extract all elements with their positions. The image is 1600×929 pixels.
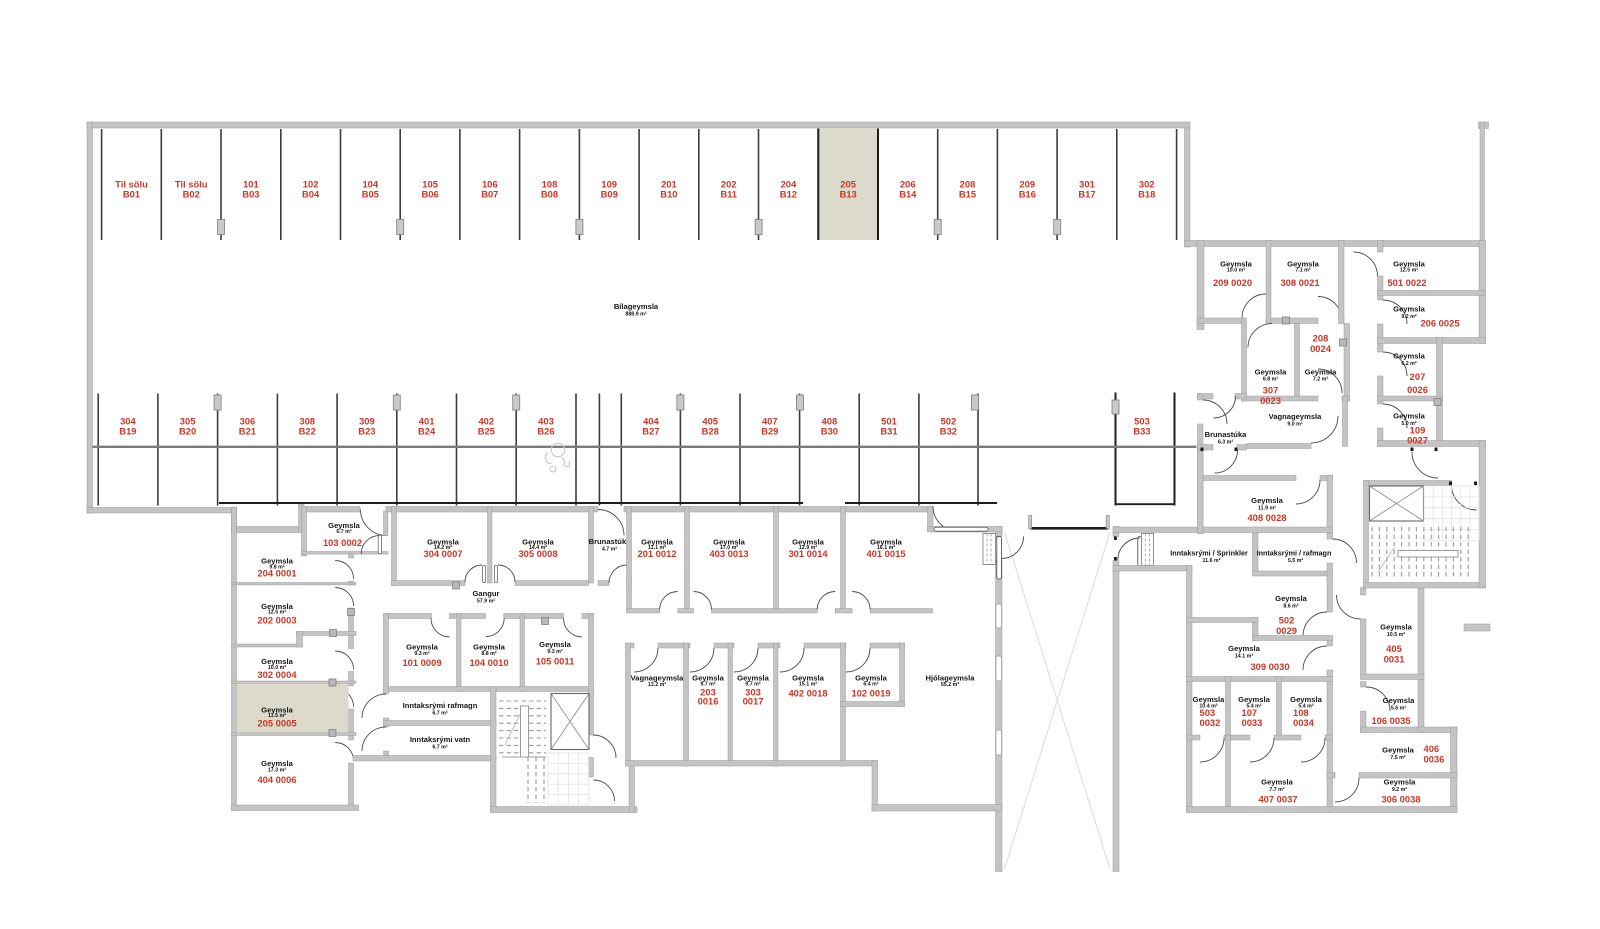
svg-text:8.6 m²: 8.6 m² xyxy=(1283,604,1299,610)
svg-text:Geymsla: Geymsla xyxy=(1251,496,1283,505)
svg-text:55.2 m²: 55.2 m² xyxy=(941,682,959,688)
svg-text:B20: B20 xyxy=(179,426,196,437)
svg-text:Vagnageymsla: Vagnageymsla xyxy=(1269,412,1323,421)
svg-text:0024: 0024 xyxy=(1310,343,1332,354)
svg-text:B17: B17 xyxy=(1078,189,1095,200)
svg-text:Brunastúka: Brunastúka xyxy=(589,537,632,546)
svg-text:204 0001: 204 0001 xyxy=(257,568,296,579)
svg-text:103 0002: 103 0002 xyxy=(323,537,362,548)
svg-text:0023: 0023 xyxy=(1260,395,1281,406)
svg-text:101 0009: 101 0009 xyxy=(402,657,441,668)
svg-text:B12: B12 xyxy=(780,189,797,200)
svg-text:7.1 m²: 7.1 m² xyxy=(1295,268,1311,274)
svg-text:7.7 m²: 7.7 m² xyxy=(1269,787,1285,793)
svg-text:0033: 0033 xyxy=(1242,717,1263,728)
svg-text:11.6 m²: 11.6 m² xyxy=(1203,558,1221,564)
svg-text:B18: B18 xyxy=(1138,189,1155,200)
svg-text:11.9 m²: 11.9 m² xyxy=(1258,506,1276,512)
svg-text:B27: B27 xyxy=(642,426,659,437)
svg-text:B16: B16 xyxy=(1019,189,1036,200)
svg-text:0027: 0027 xyxy=(1407,435,1428,446)
svg-text:Geymsla: Geymsla xyxy=(1380,623,1412,632)
svg-text:B01: B01 xyxy=(123,189,140,200)
svg-text:6.7 m²: 6.7 m² xyxy=(432,745,448,751)
svg-text:B22: B22 xyxy=(299,426,316,437)
svg-text:9.2 m²: 9.2 m² xyxy=(1401,314,1417,320)
svg-text:401 0015: 401 0015 xyxy=(866,548,905,559)
svg-text:B23: B23 xyxy=(358,426,375,437)
svg-text:106 0035: 106 0035 xyxy=(1371,715,1410,726)
svg-text:B08: B08 xyxy=(541,189,558,200)
svg-text:B09: B09 xyxy=(601,189,618,200)
svg-text:B07: B07 xyxy=(481,189,498,200)
svg-text:B03: B03 xyxy=(242,189,259,200)
svg-text:302 0004: 302 0004 xyxy=(257,669,297,680)
svg-text:B11: B11 xyxy=(720,189,737,200)
svg-text:B10: B10 xyxy=(660,189,677,200)
svg-text:B14: B14 xyxy=(899,189,917,200)
svg-text:5.5 m²: 5.5 m² xyxy=(1288,558,1304,564)
svg-text:4.7 m²: 4.7 m² xyxy=(602,547,618,553)
svg-text:408 0028: 408 0028 xyxy=(1247,512,1286,523)
svg-text:Geymsla: Geymsla xyxy=(261,759,293,768)
svg-text:B19: B19 xyxy=(119,426,136,437)
svg-text:9.3 m²: 9.3 m² xyxy=(547,649,563,655)
svg-text:209 0020: 209 0020 xyxy=(1213,277,1252,288)
svg-text:B33: B33 xyxy=(1133,426,1150,437)
svg-text:502: 502 xyxy=(1279,615,1295,626)
svg-text:403 0013: 403 0013 xyxy=(709,548,748,559)
svg-text:0017: 0017 xyxy=(743,696,764,707)
svg-text:6.3 m²: 6.3 m² xyxy=(1218,440,1234,446)
svg-text:Inntaksrými / rafmagn: Inntaksrými / rafmagn xyxy=(1257,549,1332,558)
svg-text:9.2 m²: 9.2 m² xyxy=(1392,787,1408,793)
svg-text:Geymsla: Geymsla xyxy=(473,642,505,651)
svg-text:406: 406 xyxy=(1424,743,1440,754)
svg-text:B26: B26 xyxy=(537,426,554,437)
svg-text:B28: B28 xyxy=(702,426,719,437)
svg-text:201 0012: 201 0012 xyxy=(637,548,676,559)
svg-text:304 0007: 304 0007 xyxy=(423,548,462,559)
svg-text:Inntaksrými / Sprinkler: Inntaksrými / Sprinkler xyxy=(1170,549,1248,558)
svg-text:205 0005: 205 0005 xyxy=(257,717,296,728)
svg-text:B15: B15 xyxy=(959,189,976,200)
svg-text:B06: B06 xyxy=(421,189,438,200)
svg-text:Geymsla: Geymsla xyxy=(1382,746,1414,755)
svg-text:Inntaksrými vatn: Inntaksrými vatn xyxy=(410,735,471,744)
svg-text:404 0006: 404 0006 xyxy=(257,774,296,785)
svg-text:12.5 m²: 12.5 m² xyxy=(1400,268,1418,274)
svg-text:B02: B02 xyxy=(183,189,200,200)
svg-text:Inntaksrými rafmagn: Inntaksrými rafmagn xyxy=(403,701,478,710)
svg-text:0031: 0031 xyxy=(1384,654,1405,665)
svg-text:Brunastúka: Brunastúka xyxy=(1205,430,1248,439)
svg-text:0032: 0032 xyxy=(1200,717,1221,728)
svg-text:Geymsla: Geymsla xyxy=(1384,778,1416,787)
svg-text:Geymsla: Geymsla xyxy=(1255,368,1287,377)
svg-text:Geymsla: Geymsla xyxy=(406,642,438,651)
svg-text:Geymsla: Geymsla xyxy=(1393,305,1425,314)
svg-text:6.2 m²: 6.2 m² xyxy=(1401,361,1417,367)
svg-text:13.2 m²: 13.2 m² xyxy=(648,682,666,688)
svg-text:305 0008: 305 0008 xyxy=(518,548,557,559)
svg-text:Gangur: Gangur xyxy=(472,589,499,598)
svg-text:102 0019: 102 0019 xyxy=(851,688,890,699)
svg-text:407 0037: 407 0037 xyxy=(1258,794,1297,805)
svg-text:Geymsla: Geymsla xyxy=(1383,696,1415,705)
svg-text:309 0030: 309 0030 xyxy=(1250,661,1289,672)
svg-text:B31: B31 xyxy=(880,426,897,437)
svg-text:57.9 m²: 57.9 m² xyxy=(477,599,495,605)
svg-text:7.5 m²: 7.5 m² xyxy=(1390,755,1406,761)
svg-text:202 0003: 202 0003 xyxy=(257,615,296,626)
svg-text:B05: B05 xyxy=(362,189,379,200)
svg-text:402 0018: 402 0018 xyxy=(788,688,827,699)
svg-text:Geymsla: Geymsla xyxy=(1305,368,1337,377)
svg-text:0016: 0016 xyxy=(698,696,719,707)
svg-text:B04: B04 xyxy=(302,189,320,200)
svg-text:B25: B25 xyxy=(478,426,495,437)
svg-text:Geymsla: Geymsla xyxy=(1261,778,1293,787)
svg-text:Geymsla: Geymsla xyxy=(1393,412,1425,421)
svg-text:Geymsla: Geymsla xyxy=(1393,352,1425,361)
svg-text:208: 208 xyxy=(1313,333,1329,344)
svg-text:206 0025: 206 0025 xyxy=(1420,318,1459,329)
svg-text:0036: 0036 xyxy=(1424,754,1445,765)
svg-text:Geymsla: Geymsla xyxy=(1275,594,1307,603)
svg-text:Bílageymsla: Bílageymsla xyxy=(614,302,659,311)
svg-text:105 0011: 105 0011 xyxy=(536,656,575,667)
svg-text:5.6 m²: 5.6 m² xyxy=(1391,706,1407,712)
svg-text:501 0022: 501 0022 xyxy=(1387,277,1426,288)
svg-text:207: 207 xyxy=(1410,371,1426,382)
svg-text:10.0 m²: 10.0 m² xyxy=(1227,268,1245,274)
svg-text:6.7 m²: 6.7 m² xyxy=(336,529,352,535)
svg-text:0029: 0029 xyxy=(1276,625,1297,636)
svg-text:6.7 m²: 6.7 m² xyxy=(432,711,448,717)
svg-text:B30: B30 xyxy=(821,426,838,437)
svg-text:B32: B32 xyxy=(940,426,957,437)
svg-text:405: 405 xyxy=(1386,643,1402,654)
svg-text:9.0 m²: 9.0 m² xyxy=(1287,422,1303,428)
svg-text:307: 307 xyxy=(1263,385,1279,396)
svg-text:B13: B13 xyxy=(839,189,856,200)
svg-text:7.2 m²: 7.2 m² xyxy=(1313,377,1329,383)
svg-text:306 0038: 306 0038 xyxy=(1381,794,1420,805)
svg-text:17.3 m²: 17.3 m² xyxy=(268,768,286,774)
svg-text:6.8 m²: 6.8 m² xyxy=(1263,377,1279,383)
svg-text:B24: B24 xyxy=(418,426,436,437)
svg-text:888.9 m²: 888.9 m² xyxy=(625,312,646,318)
svg-text:B29: B29 xyxy=(761,426,778,437)
svg-text:308 0021: 308 0021 xyxy=(1280,277,1319,288)
svg-text:104 0010: 104 0010 xyxy=(469,657,508,668)
svg-text:B21: B21 xyxy=(239,426,256,437)
svg-text:301 0014: 301 0014 xyxy=(788,548,828,559)
svg-text:Geymsla: Geymsla xyxy=(1228,644,1260,653)
svg-text:14.1 m²: 14.1 m² xyxy=(1235,654,1253,660)
svg-text:0026: 0026 xyxy=(1407,384,1428,395)
svg-text:10.5 m²: 10.5 m² xyxy=(1387,632,1405,638)
svg-text:0034: 0034 xyxy=(1293,717,1315,728)
